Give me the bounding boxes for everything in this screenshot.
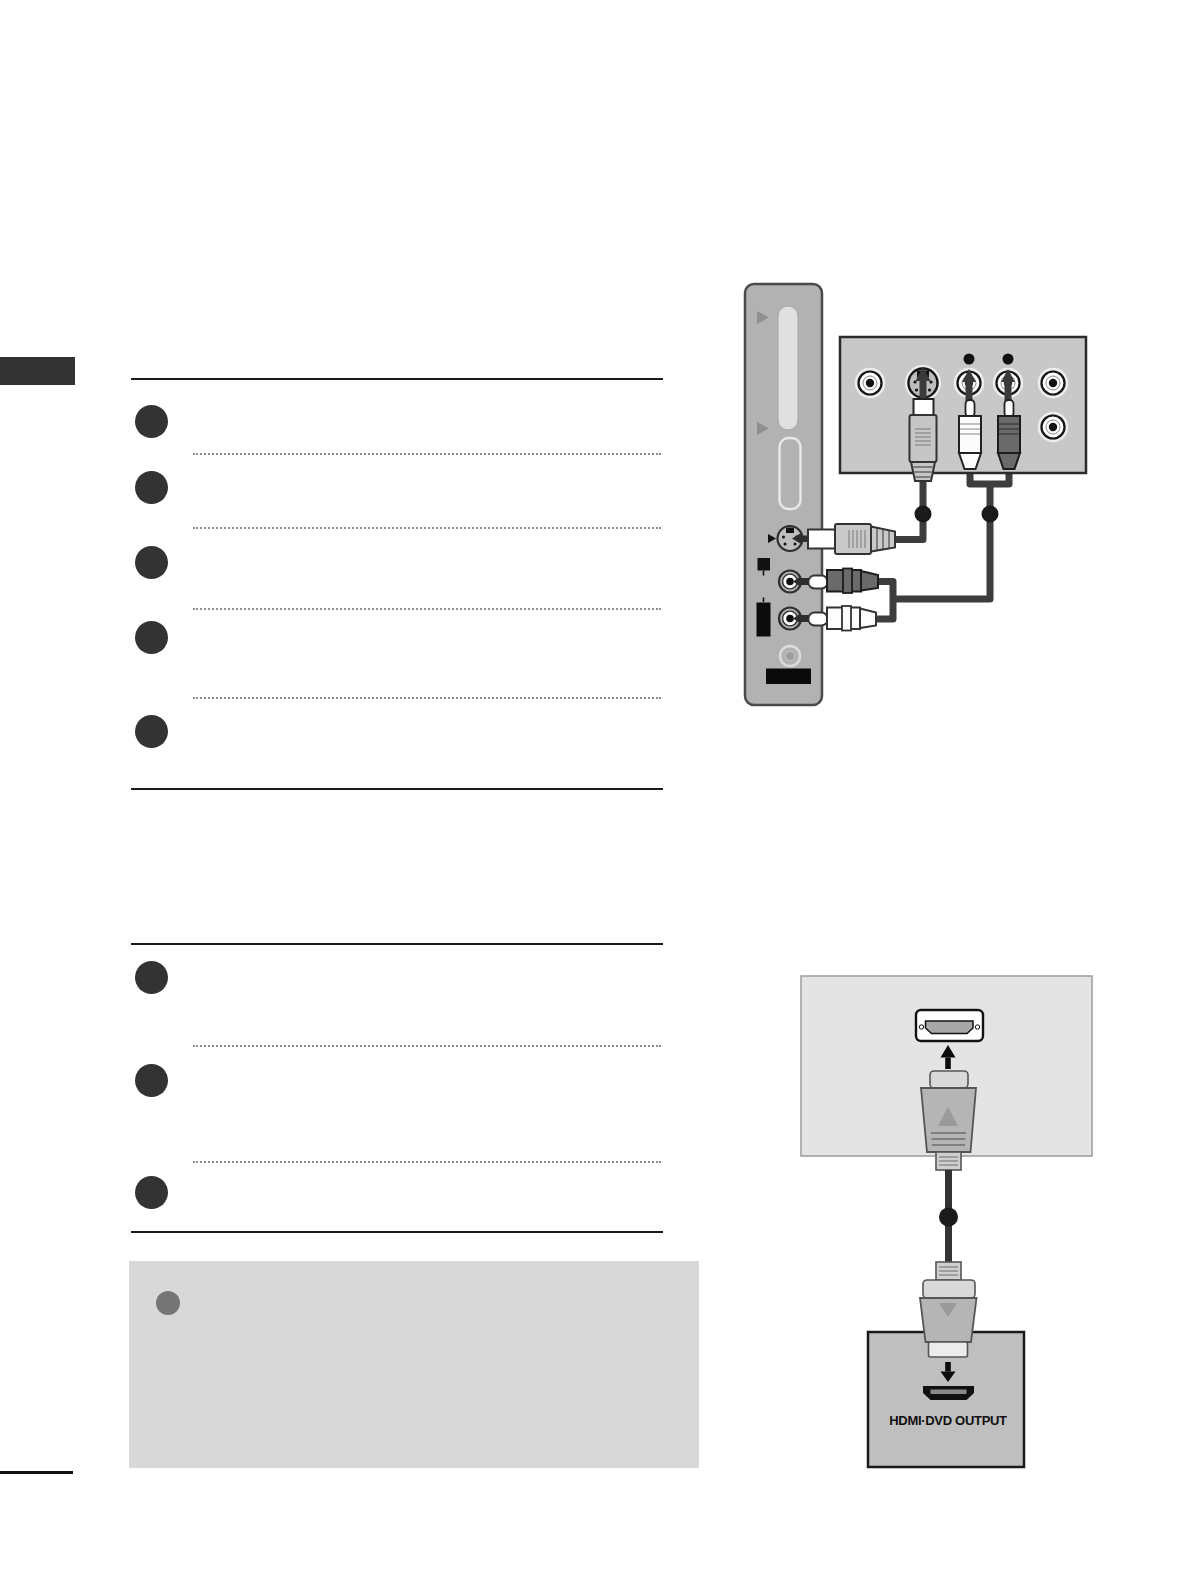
step-marker-2 [135,471,168,504]
step-divider [193,527,661,529]
step-divider [193,697,661,699]
manual-page: HDMI·DVD OUTPUT [0,0,1190,1586]
step-marker-5 [135,715,168,748]
section1-top-rule [131,378,663,380]
section1-bottom-rule [131,788,663,790]
hdmi-plug-lower [920,1262,977,1357]
chapter-edge-tab [0,357,75,385]
rca-jack-right-bottom [1039,413,1067,441]
step-divider [193,1161,661,1163]
channel-dot [1003,354,1014,365]
ferrite-core-dot [915,506,932,523]
rca-jack-left [856,369,884,397]
vent-slot-icon [766,669,811,685]
step-marker-1 [135,405,168,438]
switch-icon [758,558,771,571]
step-marker-2 [135,1064,168,1097]
hdmi-port-icon [926,1021,974,1034]
section2-top-rule [131,943,663,945]
section2-bottom-rule [131,1231,663,1233]
step-marker-3 [135,546,168,579]
side-av-connection-diagram [700,270,1100,720]
s-video-plug-tv [792,524,895,554]
ferrite-core-dot [939,1208,958,1227]
tv-side-panel [745,284,822,705]
note-bullet-icon [156,1291,180,1315]
step-marker-1 [135,961,168,994]
step-divider [193,453,661,455]
step-divider [193,1045,661,1047]
step-divider [193,608,661,610]
hdmi-output-label: HDMI·DVD OUTPUT [889,1413,1007,1428]
step-marker-4 [135,621,168,654]
card-slot-2-icon [757,603,771,637]
ferrite-core-dot [982,506,999,523]
note-box [129,1261,699,1468]
hdmi-connection-diagram: HDMI·DVD OUTPUT [790,960,1100,1475]
page-footer-line [0,1471,73,1474]
card-slot-icon [778,306,798,430]
step-marker-3 [135,1176,168,1209]
s-video-plug-device [910,399,937,481]
channel-dot [964,354,975,365]
rca-jack-right-top [1039,369,1067,397]
